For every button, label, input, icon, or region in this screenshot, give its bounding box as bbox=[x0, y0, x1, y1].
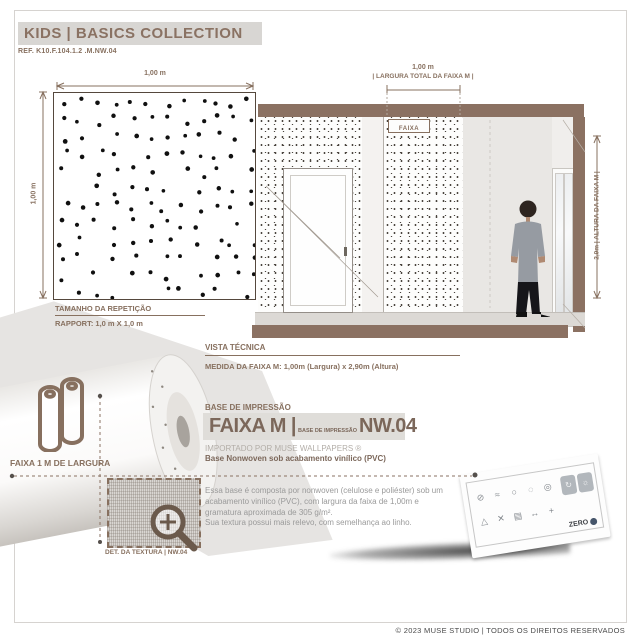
product-code: NW.04 bbox=[359, 415, 417, 438]
copyright-footer: © 2023 MUSE STUDIO | TODOS OS DIREITOS R… bbox=[396, 626, 625, 635]
spec-sheet-page: KIDS | BASICS COLLECTION REF. K10.F.104.… bbox=[0, 0, 640, 640]
care-badge-icon: ☼ bbox=[577, 472, 595, 493]
zero-logo-icon bbox=[590, 518, 598, 526]
care-badge-icon: ↻ bbox=[560, 474, 578, 495]
pattern-icon: ↔ bbox=[525, 507, 543, 520]
strippable-icon: ◌ bbox=[522, 483, 540, 496]
glass-door bbox=[552, 168, 575, 327]
base-description-1: Essa base é composta por nonwoven (celul… bbox=[205, 486, 457, 518]
room-faixa-strip bbox=[383, 117, 464, 312]
washable-icon: ≈ bbox=[488, 488, 506, 501]
care-card-border: ⊘≈○◌◎ △✕▤↔+ ↻ ☼ ZERO bbox=[465, 462, 604, 548]
magnifier-icon bbox=[146, 500, 206, 560]
repeat-title: TAMANHO DA REPETIÇÃO bbox=[55, 304, 205, 316]
paste-icon: ▤ bbox=[509, 510, 528, 524]
importer-line: IMPORTADO POR MUSE WALLPAPERS ® bbox=[205, 444, 361, 453]
door-handle-icon bbox=[344, 247, 347, 256]
swatch-height-label: 1,00 m bbox=[31, 154, 38, 234]
room-height-caption: 2,9m | ALTURA DA FAIXA M | bbox=[594, 141, 601, 291]
page-title: KIDS | BASICS COLLECTION bbox=[18, 22, 262, 45]
zero-logo: ZERO bbox=[568, 519, 588, 529]
person-figure bbox=[506, 198, 550, 320]
repeat-value: RAPPORT: 1,0 m X 1,0 m bbox=[55, 319, 205, 328]
room-strip-width-caption: | LARGURA TOTAL DA FAIXA M | bbox=[348, 73, 498, 80]
roll-width-label: FAIXA 1 M DE LARGURA bbox=[10, 458, 110, 468]
reference-code: REF. K10.F.104.1.2 .M.NW.04 bbox=[18, 48, 117, 55]
room-right-column bbox=[573, 117, 585, 332]
base-description-2: Sua textura possui mais relevo, com seme… bbox=[205, 518, 457, 529]
room-strip-width-value: 1,00 m bbox=[368, 64, 478, 71]
faixa-tag: FAIXA bbox=[388, 119, 430, 133]
color-fast-icon: ○ bbox=[505, 486, 523, 499]
wallpaper-rolls-icon bbox=[36, 372, 88, 452]
product-name-sub: BASE DE IMPRESSÃO bbox=[298, 428, 357, 434]
product-title-box: FAIXA M | BASE DE IMPRESSÃO NW.04 bbox=[203, 413, 405, 440]
base-section-title: BASE DE IMPRESSÃO bbox=[205, 403, 291, 412]
fire-icon: △ bbox=[475, 515, 494, 529]
room-ceiling-band bbox=[258, 104, 584, 117]
mold-icon: ✕ bbox=[492, 512, 511, 526]
faixa-tag-label: FAIXA bbox=[399, 126, 419, 132]
room-door bbox=[283, 168, 353, 313]
base-material-line: Base Nonwoven sob acabamento vinílico (P… bbox=[205, 454, 386, 463]
tools-icon: + bbox=[542, 504, 560, 517]
wheel-icon: ◎ bbox=[538, 481, 557, 495]
pattern-swatch bbox=[53, 92, 256, 300]
pattern-dots-svg bbox=[54, 93, 255, 299]
swatch-width-label: 1,00 m bbox=[57, 70, 253, 77]
base-description: Essa base é composta por nonwoven (celul… bbox=[205, 486, 457, 529]
product-name: FAIXA M | bbox=[209, 415, 296, 438]
room-wall-gap bbox=[362, 117, 383, 312]
no-bleach-icon: ⊘ bbox=[471, 491, 490, 505]
